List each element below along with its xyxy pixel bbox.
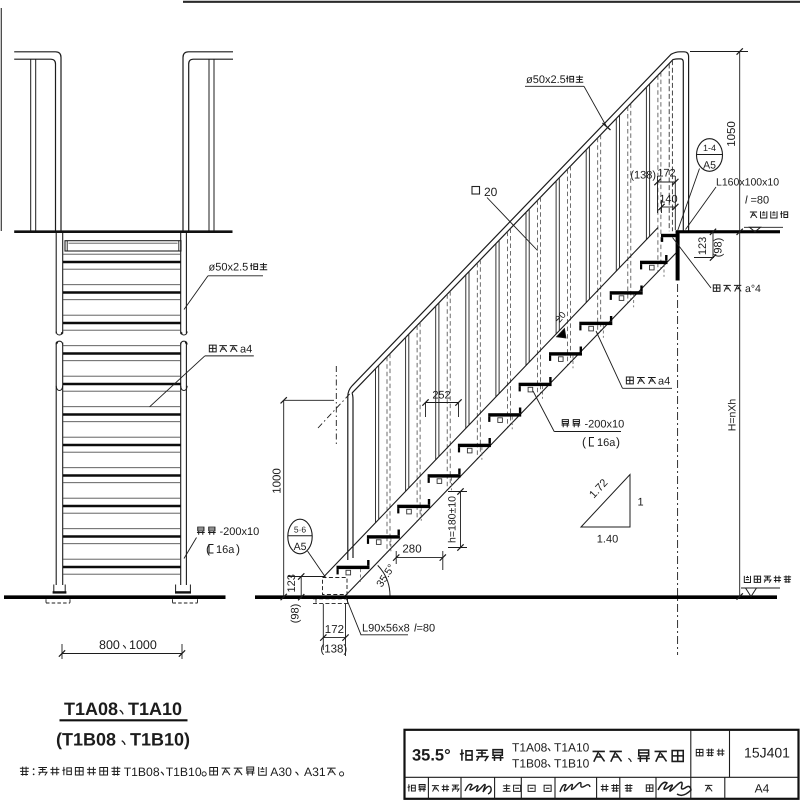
svg-text:A5: A5	[703, 160, 716, 172]
svg-text:ø50x2.5: ø50x2.5	[526, 74, 566, 86]
svg-text:(138): (138)	[320, 644, 347, 656]
svg-text:1: 1	[638, 497, 644, 509]
svg-text:): )	[616, 435, 620, 449]
svg-text:(98): (98)	[713, 238, 725, 258]
svg-text:123: 123	[697, 237, 709, 255]
svg-text:l =80: l =80	[745, 195, 769, 207]
svg-text:a4: a4	[658, 376, 670, 388]
svg-text:A30: A30	[270, 765, 292, 779]
svg-text:T1B10): T1B10)	[130, 730, 190, 750]
svg-text:1000: 1000	[272, 468, 284, 494]
svg-text:5·6: 5·6	[294, 525, 307, 535]
svg-text:T1B08: T1B08	[512, 757, 548, 771]
svg-text:15J401: 15J401	[744, 745, 790, 761]
svg-text:A31: A31	[304, 765, 326, 779]
svg-text:1-4: 1-4	[703, 143, 716, 153]
svg-text:1.40: 1.40	[597, 534, 618, 546]
svg-text:T1B10: T1B10	[554, 757, 590, 771]
svg-text:16a: 16a	[216, 544, 235, 556]
svg-text:): )	[236, 542, 240, 556]
svg-text:800: 800	[99, 638, 120, 652]
svg-text:H=nXh: H=nXh	[727, 399, 739, 432]
svg-text:l=80: l=80	[414, 623, 435, 635]
svg-text:1000: 1000	[129, 638, 157, 652]
svg-text:20: 20	[484, 185, 498, 199]
svg-text:h=180±10: h=180±10	[446, 496, 458, 543]
svg-text:(98): (98)	[290, 604, 302, 624]
svg-text:172: 172	[325, 624, 344, 636]
svg-text:a4: a4	[240, 344, 252, 356]
svg-text:-200x10: -200x10	[220, 526, 260, 538]
svg-text:T1A08: T1A08	[512, 741, 548, 755]
svg-text:16a: 16a	[597, 437, 616, 449]
svg-text:T1A10: T1A10	[128, 699, 182, 719]
svg-text:1050: 1050	[726, 121, 738, 147]
svg-text:35.5°: 35.5°	[412, 747, 451, 765]
svg-text:ø50x2.5: ø50x2.5	[209, 262, 249, 274]
svg-text:L160x100x10: L160x100x10	[716, 177, 779, 189]
svg-text:L90x56x8: L90x56x8	[362, 623, 410, 635]
svg-text:T1A08: T1A08	[64, 699, 118, 719]
svg-text:T1B10: T1B10	[166, 765, 202, 779]
svg-text:123: 123	[286, 574, 298, 592]
svg-text:T1B08: T1B08	[124, 765, 160, 779]
svg-text:140: 140	[659, 194, 677, 206]
svg-text:a°4: a°4	[745, 283, 761, 295]
svg-text:172: 172	[657, 168, 675, 180]
svg-text:A5: A5	[294, 541, 307, 553]
svg-text:A4: A4	[755, 782, 770, 796]
svg-text:-200x10: -200x10	[585, 419, 625, 431]
svg-text:(138): (138)	[630, 170, 656, 182]
svg-text:252: 252	[432, 390, 450, 402]
svg-text:280: 280	[402, 544, 421, 556]
svg-text:(: (	[582, 435, 586, 449]
svg-text:(T1B08: (T1B08	[56, 730, 116, 750]
svg-text:T1A10: T1A10	[554, 741, 590, 755]
